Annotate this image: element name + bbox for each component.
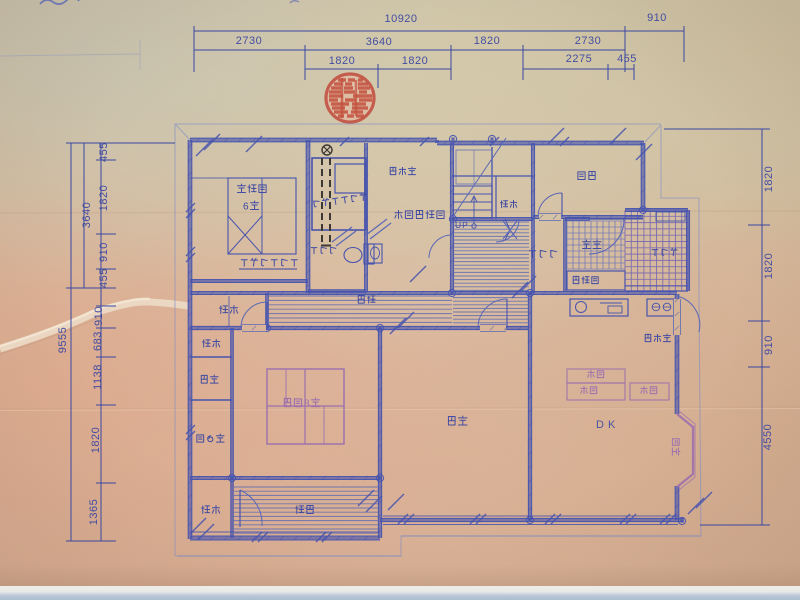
svg-text:455: 455: [98, 268, 110, 288]
svg-text:910: 910: [647, 12, 667, 24]
svg-text:9555: 9555: [57, 327, 69, 353]
svg-text:6: 6: [243, 202, 249, 213]
svg-text:683: 683: [92, 331, 104, 351]
svg-text:1820: 1820: [763, 166, 775, 192]
svg-text:1820: 1820: [329, 55, 355, 67]
svg-text:1820: 1820: [763, 253, 775, 279]
svg-text:1820: 1820: [402, 55, 428, 67]
svg-text:8: 8: [304, 399, 310, 410]
svg-text:455: 455: [617, 53, 637, 65]
svg-text:455: 455: [98, 142, 110, 162]
svg-text:UP: UP: [455, 220, 469, 230]
svg-text:910: 910: [98, 242, 110, 262]
svg-text:1138: 1138: [92, 364, 104, 390]
svg-text:DK: DK: [596, 419, 619, 431]
svg-text:2275: 2275: [566, 53, 592, 65]
svg-text:1365: 1365: [88, 499, 100, 525]
svg-text:1820: 1820: [98, 185, 110, 211]
svg-text:3640: 3640: [366, 36, 392, 48]
svg-text:910: 910: [763, 335, 775, 355]
svg-text:4550: 4550: [762, 424, 774, 450]
svg-text:910: 910: [93, 306, 105, 326]
svg-text:1820: 1820: [90, 427, 102, 453]
svg-text:3640: 3640: [81, 202, 93, 228]
svg-text:10920: 10920: [384, 13, 417, 25]
svg-text:1820: 1820: [474, 35, 500, 47]
svg-text:2730: 2730: [236, 35, 262, 47]
svg-text:2730: 2730: [575, 35, 601, 47]
